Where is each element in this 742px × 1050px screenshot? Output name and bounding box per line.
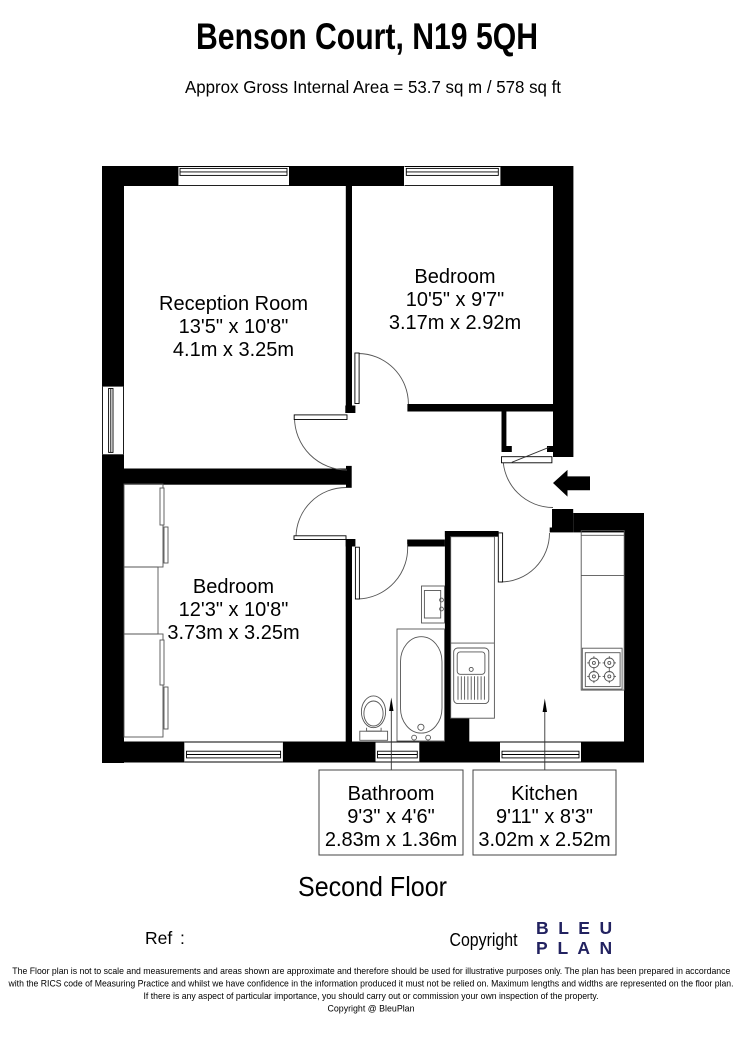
svg-text:Bedroom: Bedroom (193, 576, 274, 598)
svg-text:with the RICS code of Measurin: with the RICS code of Measuring Practice… (8, 979, 734, 989)
svg-text:9'11" x 8'3": 9'11" x 8'3" (496, 806, 593, 828)
svg-text:4.1m x 3.25m: 4.1m x 3.25m (173, 339, 294, 361)
svg-text:3.02m x 2.52m: 3.02m x 2.52m (478, 829, 610, 851)
svg-text:3.17m x 2.92m: 3.17m x 2.92m (389, 312, 521, 334)
svg-text:2.83m x 1.36m: 2.83m x 1.36m (325, 829, 457, 851)
svg-text:Kitchen: Kitchen (511, 783, 578, 805)
svg-text:Copyright: Copyright (450, 929, 518, 950)
svg-text:Second Floor: Second Floor (298, 871, 447, 902)
svg-text:9'3" x 4'6": 9'3" x 4'6" (347, 806, 434, 828)
svg-text::: : (180, 928, 185, 948)
svg-text:Approx Gross Internal Area = 5: Approx Gross Internal Area = 53.7 sq m /… (185, 77, 561, 97)
svg-text:Bathroom: Bathroom (348, 783, 435, 805)
svg-text:3.73m x 3.25m: 3.73m x 3.25m (167, 622, 299, 644)
svg-text:12'3" x 10'8": 12'3" x 10'8" (179, 599, 289, 621)
svg-text:Bedroom: Bedroom (414, 266, 495, 288)
svg-text:Reception Room: Reception Room (159, 293, 308, 315)
svg-text:B L E U: B L E U (536, 918, 612, 938)
svg-text:13'5" x 10'8": 13'5" x 10'8" (179, 316, 289, 338)
svg-text:Ref: Ref (145, 928, 172, 948)
svg-text:10'5" x 9'7": 10'5" x 9'7" (406, 289, 505, 311)
svg-text:Benson Court, N19 5QH: Benson Court, N19 5QH (196, 16, 538, 57)
svg-text:Copyright @ BleuPlan: Copyright @ BleuPlan (328, 1004, 415, 1014)
svg-text:The Floor plan is not to scale: The Floor plan is not to scale and measu… (12, 966, 730, 976)
svg-text:If there is any aspect of part: If there is any aspect of particular imp… (144, 991, 599, 1001)
